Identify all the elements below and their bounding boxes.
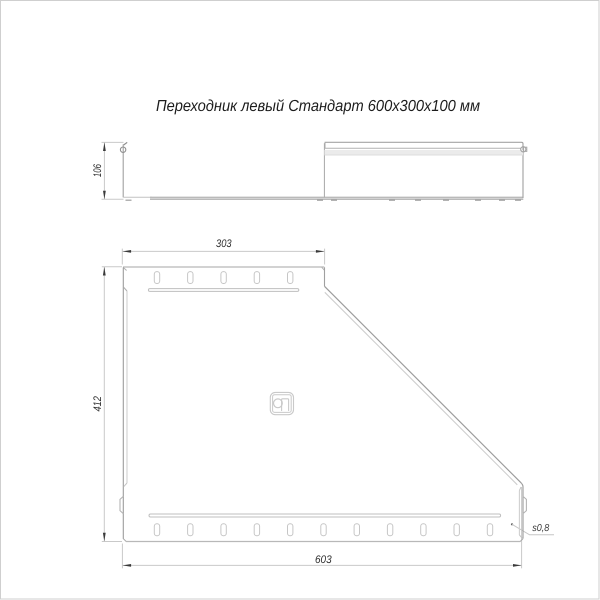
svg-text:603: 603 [315, 554, 332, 566]
svg-text:s0,8: s0,8 [532, 523, 549, 534]
svg-text:303: 303 [216, 238, 232, 250]
svg-text:412: 412 [92, 396, 104, 412]
svg-text:Переходник левый Стандарт 600х: Переходник левый Стандарт 600х300х100 мм [156, 98, 480, 115]
svg-text:106: 106 [92, 163, 104, 177]
